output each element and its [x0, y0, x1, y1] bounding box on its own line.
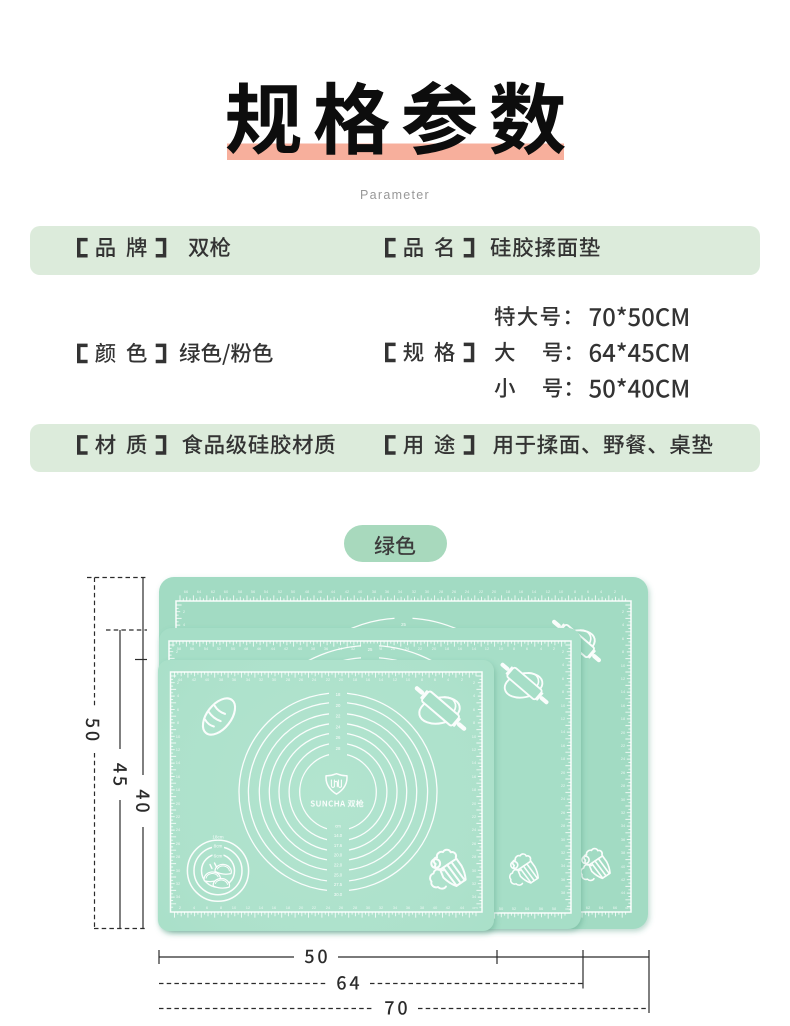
svg-text:10: 10 — [472, 734, 477, 739]
svg-text:14: 14 — [621, 689, 626, 694]
svg-text:38: 38 — [561, 890, 566, 895]
svg-text:16: 16 — [621, 703, 626, 708]
svg-text:38: 38 — [219, 677, 224, 682]
svg-text:36: 36 — [561, 877, 566, 882]
svg-text:34: 34 — [393, 905, 398, 910]
svg-text:26: 26 — [472, 841, 477, 846]
svg-text:14: 14 — [532, 589, 537, 594]
svg-text:62: 62 — [586, 905, 591, 910]
svg-text:16: 16 — [561, 743, 566, 748]
svg-text:38: 38 — [372, 589, 377, 594]
svg-text:20: 20 — [299, 905, 304, 910]
svg-text:32: 32 — [621, 810, 626, 815]
svg-text:17.6: 17.6 — [334, 843, 343, 848]
svg-text:14: 14 — [561, 729, 566, 734]
svg-text:cm: cm — [565, 906, 571, 911]
svg-text:66: 66 — [184, 589, 189, 594]
svg-text:46: 46 — [318, 589, 323, 594]
svg-text:24: 24 — [336, 724, 341, 729]
svg-text:10: 10 — [561, 703, 566, 708]
svg-text:26: 26 — [339, 905, 344, 910]
svg-text:36: 36 — [385, 589, 390, 594]
svg-text:36: 36 — [621, 837, 626, 842]
svg-text:28: 28 — [472, 854, 477, 859]
svg-text:14: 14 — [379, 677, 384, 682]
svg-text:56: 56 — [251, 589, 256, 594]
svg-text:22: 22 — [561, 783, 566, 788]
svg-text:28: 28 — [439, 589, 444, 594]
svg-text:58: 58 — [238, 589, 243, 594]
svg-text:16: 16 — [366, 677, 371, 682]
svg-text:38: 38 — [420, 905, 425, 910]
svg-text:12: 12 — [246, 905, 251, 910]
svg-text:34: 34 — [246, 677, 251, 682]
svg-text:18: 18 — [353, 677, 358, 682]
svg-text:28: 28 — [336, 746, 341, 751]
svg-text:25: 25 — [401, 622, 406, 627]
svg-text:20: 20 — [339, 677, 344, 682]
svg-text:18: 18 — [286, 905, 291, 910]
svg-text:50: 50 — [291, 589, 296, 594]
svg-text:28: 28 — [286, 677, 291, 682]
svg-text:14.0: 14.0 — [334, 833, 343, 838]
svg-text:24: 24 — [561, 796, 566, 801]
svg-text:64: 64 — [599, 905, 604, 910]
svg-text:56: 56 — [190, 646, 195, 651]
svg-text:20: 20 — [432, 646, 437, 651]
svg-text:50: 50 — [499, 906, 504, 911]
svg-text:42: 42 — [446, 905, 451, 910]
svg-text:36: 36 — [232, 677, 237, 682]
svg-text:42: 42 — [192, 677, 197, 682]
svg-text:10: 10 — [232, 905, 237, 910]
svg-text:24: 24 — [326, 905, 331, 910]
svg-text:16: 16 — [272, 905, 277, 910]
svg-text:20: 20 — [492, 589, 497, 594]
svg-text:10: 10 — [176, 734, 181, 739]
svg-text:52: 52 — [217, 646, 222, 651]
svg-text:28: 28 — [561, 823, 566, 828]
svg-text:cm: cm — [472, 905, 478, 910]
svg-text:42: 42 — [621, 877, 626, 882]
svg-text:12: 12 — [485, 646, 490, 651]
svg-text:28: 28 — [353, 905, 358, 910]
svg-text:20: 20 — [176, 801, 181, 806]
svg-text:30: 30 — [176, 868, 181, 873]
svg-text:cm: cm — [625, 905, 631, 910]
svg-text:34: 34 — [561, 863, 566, 868]
svg-text:8cm: 8cm — [214, 844, 223, 849]
svg-text:24: 24 — [621, 756, 626, 761]
svg-text:16: 16 — [458, 646, 463, 651]
svg-text:32: 32 — [379, 905, 384, 910]
svg-text:18cm: 18cm — [212, 835, 223, 840]
svg-text:28: 28 — [621, 783, 626, 788]
svg-text:20: 20 — [621, 730, 626, 735]
svg-text:44: 44 — [331, 589, 336, 594]
svg-text:50: 50 — [231, 646, 236, 651]
svg-text:10: 10 — [499, 646, 504, 651]
svg-text:14: 14 — [472, 760, 477, 765]
svg-text:32: 32 — [412, 589, 417, 594]
svg-text:10: 10 — [559, 589, 564, 594]
svg-text:12: 12 — [546, 589, 551, 594]
svg-text:60: 60 — [224, 589, 229, 594]
svg-text:36: 36 — [324, 646, 329, 651]
svg-text:22: 22 — [418, 646, 423, 651]
svg-text:27.5: 27.5 — [334, 882, 343, 887]
svg-text:34: 34 — [472, 894, 477, 899]
svg-text:38: 38 — [311, 646, 316, 651]
svg-text:26: 26 — [299, 677, 304, 682]
svg-text:56: 56 — [539, 906, 544, 911]
svg-text:22: 22 — [472, 814, 477, 819]
svg-text:14: 14 — [259, 905, 264, 910]
svg-text:42: 42 — [345, 589, 350, 594]
svg-text:12: 12 — [621, 676, 626, 681]
svg-text:44: 44 — [460, 905, 465, 910]
svg-text:6cm: 6cm — [214, 854, 223, 859]
svg-text:12: 12 — [393, 677, 398, 682]
svg-text:10: 10 — [621, 663, 626, 668]
svg-text:24: 24 — [472, 827, 477, 832]
svg-text:32: 32 — [176, 881, 181, 886]
svg-text:26: 26 — [336, 735, 341, 740]
svg-text:18: 18 — [506, 589, 511, 594]
svg-text:18: 18 — [176, 787, 181, 792]
svg-text:20.0: 20.0 — [334, 853, 343, 858]
svg-text:40: 40 — [433, 905, 438, 910]
svg-text:34: 34 — [398, 589, 403, 594]
svg-text:25: 25 — [368, 647, 373, 652]
svg-text:40: 40 — [358, 589, 363, 594]
svg-text:32: 32 — [259, 677, 264, 682]
svg-text:cm: cm — [335, 823, 341, 828]
svg-text:44: 44 — [621, 890, 626, 895]
svg-text:24: 24 — [312, 677, 317, 682]
svg-text:22.0: 22.0 — [334, 863, 343, 868]
svg-text:22: 22 — [176, 814, 181, 819]
svg-text:26: 26 — [176, 841, 181, 846]
svg-text:66: 66 — [613, 905, 618, 910]
svg-text:Parameter: Parameter — [360, 188, 430, 202]
svg-text:28: 28 — [176, 854, 181, 859]
svg-text:24: 24 — [176, 827, 181, 832]
svg-text:12: 12 — [561, 716, 566, 721]
svg-text:34: 34 — [621, 823, 626, 828]
svg-text:48: 48 — [244, 646, 249, 651]
svg-text:32: 32 — [472, 881, 477, 886]
svg-text:36: 36 — [406, 905, 411, 910]
svg-text:22: 22 — [312, 905, 317, 910]
svg-text:18: 18 — [561, 756, 566, 761]
svg-text:32: 32 — [561, 850, 566, 855]
svg-text:30: 30 — [472, 868, 477, 873]
svg-text:40: 40 — [298, 646, 303, 651]
svg-text:46: 46 — [257, 646, 262, 651]
svg-text:40: 40 — [621, 864, 626, 869]
svg-text:30: 30 — [272, 677, 277, 682]
svg-text:14: 14 — [472, 646, 477, 651]
svg-text:25.0: 25.0 — [334, 872, 343, 877]
svg-text:18: 18 — [336, 692, 341, 697]
svg-text:18: 18 — [472, 787, 477, 792]
svg-text:30: 30 — [621, 797, 626, 802]
svg-text:42: 42 — [284, 646, 289, 651]
svg-text:54: 54 — [525, 906, 530, 911]
svg-text:12: 12 — [472, 747, 477, 752]
svg-text:18: 18 — [621, 716, 626, 721]
svg-text:14: 14 — [176, 760, 181, 765]
svg-text:30: 30 — [366, 905, 371, 910]
svg-text:38: 38 — [621, 850, 626, 855]
svg-text:16: 16 — [519, 589, 524, 594]
svg-text:54: 54 — [204, 646, 209, 651]
svg-text:26: 26 — [452, 589, 457, 594]
svg-text:12: 12 — [176, 747, 181, 752]
svg-text:20: 20 — [336, 703, 341, 708]
svg-text:62: 62 — [211, 589, 216, 594]
svg-text:22: 22 — [326, 677, 331, 682]
svg-text:44: 44 — [271, 646, 276, 651]
svg-text:22: 22 — [621, 743, 626, 748]
svg-text:18: 18 — [445, 646, 450, 651]
svg-text:26: 26 — [621, 770, 626, 775]
svg-text:30.0: 30.0 — [334, 892, 343, 897]
svg-text:20: 20 — [561, 770, 566, 775]
svg-text:16: 16 — [176, 774, 181, 779]
svg-text:48: 48 — [305, 589, 310, 594]
svg-text:30: 30 — [425, 589, 430, 594]
svg-text:34: 34 — [176, 894, 181, 899]
svg-text:58: 58 — [552, 906, 557, 911]
svg-text:52: 52 — [278, 589, 283, 594]
svg-text:20: 20 — [472, 801, 477, 806]
svg-text:30: 30 — [561, 837, 566, 842]
svg-text:54: 54 — [264, 589, 269, 594]
svg-text:52: 52 — [512, 906, 517, 911]
svg-text:40: 40 — [205, 677, 210, 682]
svg-text:26: 26 — [561, 810, 566, 815]
svg-text:22: 22 — [479, 589, 484, 594]
svg-text:16: 16 — [472, 774, 477, 779]
svg-text:64: 64 — [197, 589, 202, 594]
svg-text:22: 22 — [336, 714, 341, 719]
svg-text:24: 24 — [465, 589, 470, 594]
svg-text:10: 10 — [406, 677, 411, 682]
